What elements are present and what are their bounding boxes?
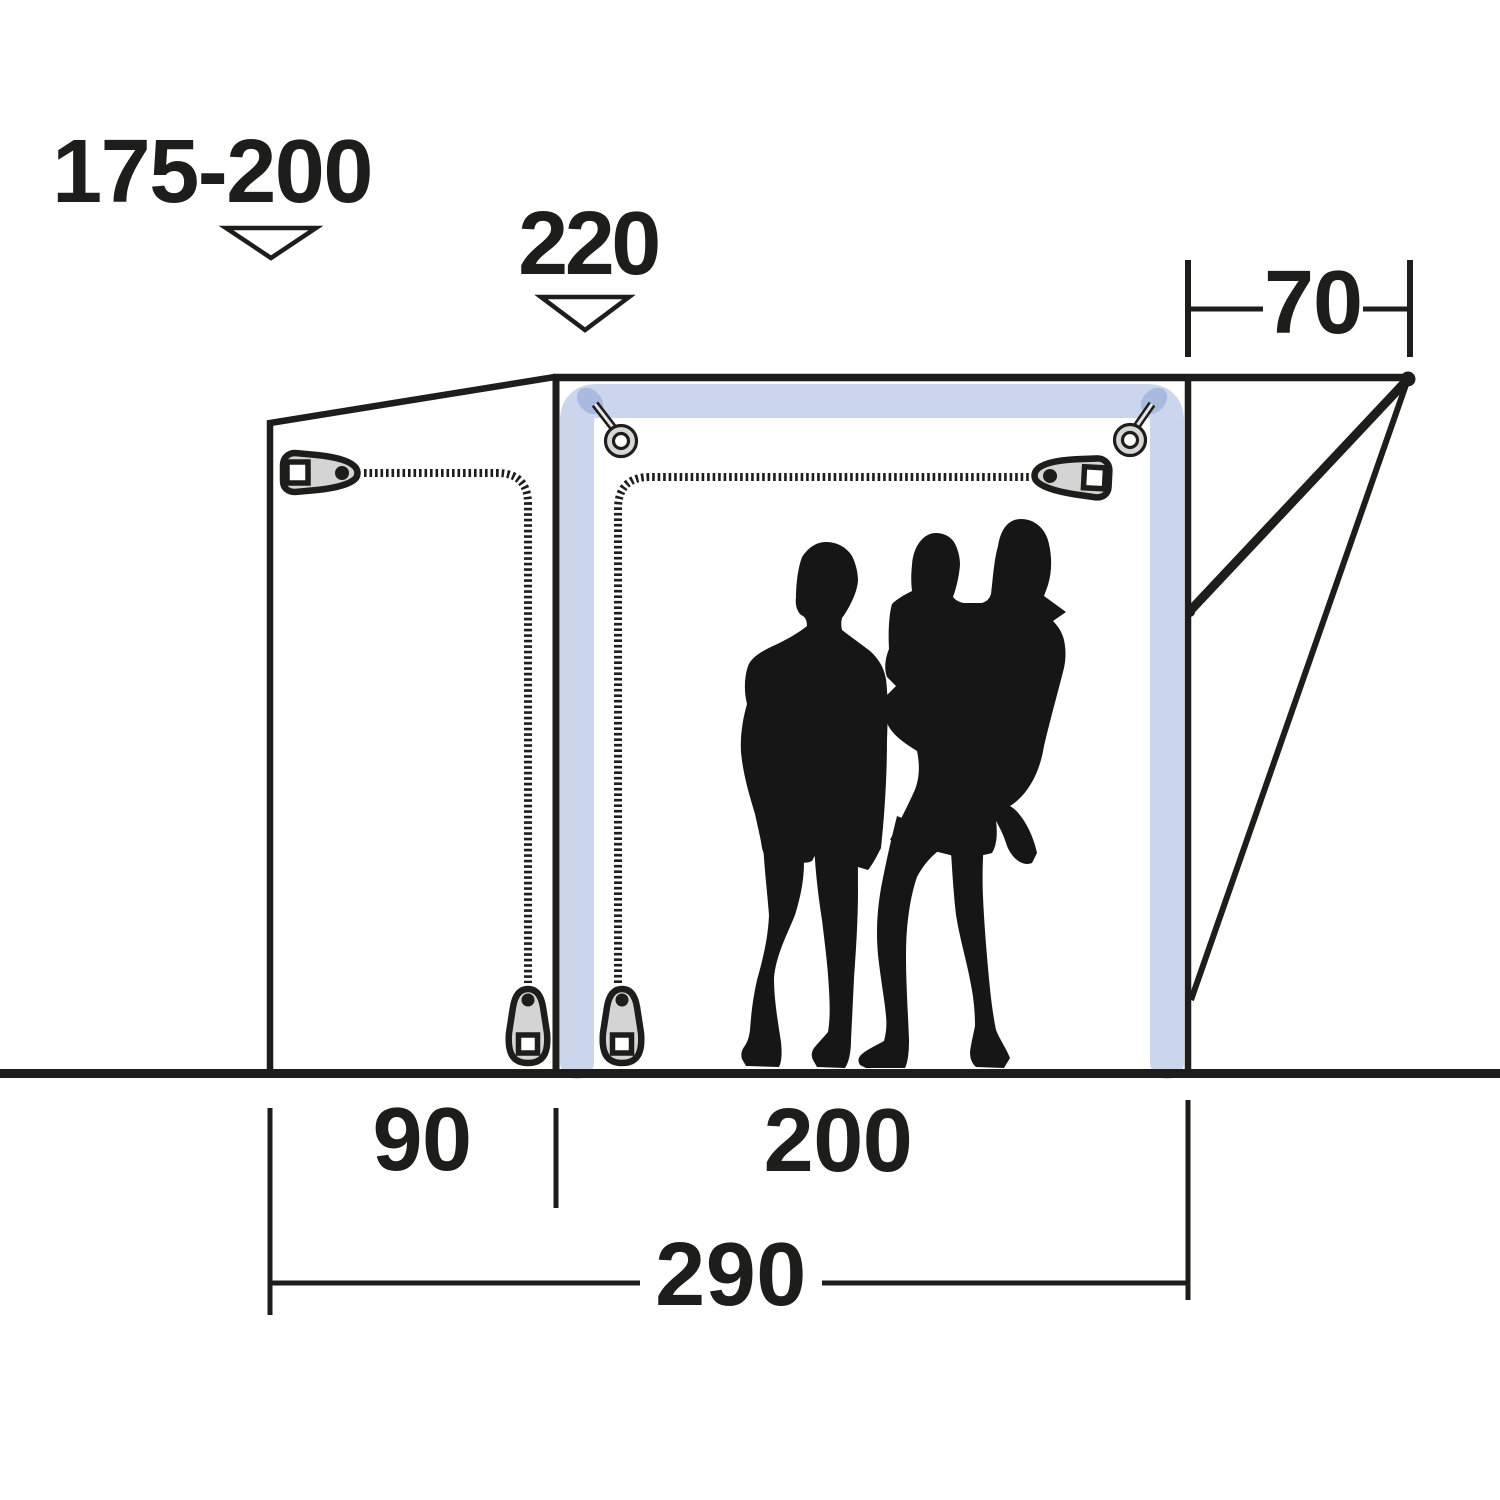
svg-text:220: 220 — [518, 194, 658, 294]
svg-text:175-200: 175-200 — [52, 122, 372, 222]
svg-text:290: 290 — [655, 1225, 807, 1325]
svg-text:70: 70 — [1264, 253, 1362, 353]
svg-text:90: 90 — [372, 1090, 471, 1190]
svg-text:200: 200 — [764, 1091, 913, 1191]
